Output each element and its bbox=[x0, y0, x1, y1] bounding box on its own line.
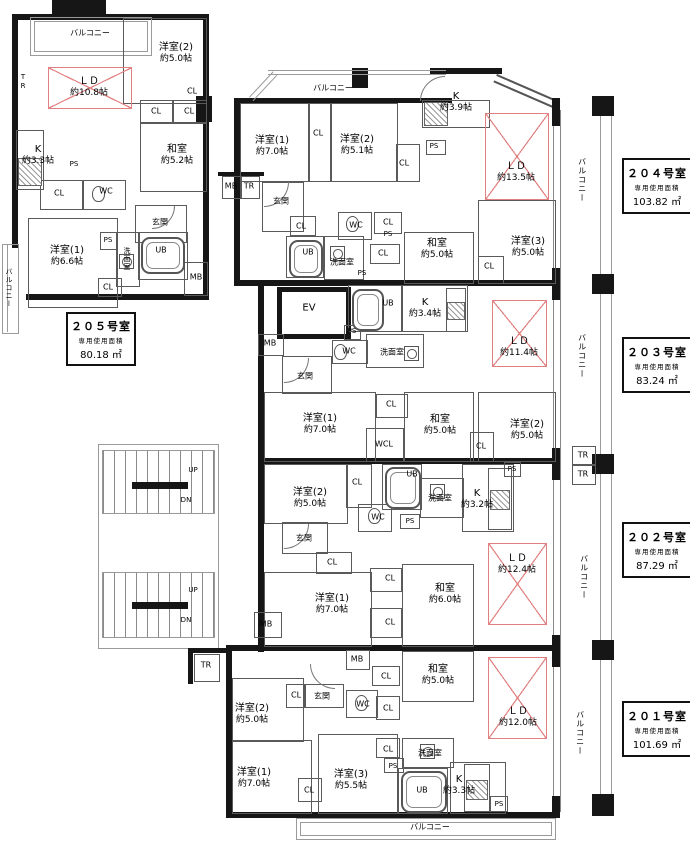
closet-label: CL bbox=[327, 557, 337, 566]
trunk-room-label: TR bbox=[19, 73, 27, 91]
room-name: 洋室(1) bbox=[255, 135, 289, 147]
room-size: 約11.4帖 bbox=[500, 348, 538, 358]
pipe-space-label: PS bbox=[508, 465, 517, 473]
pipe-space-label: PS bbox=[406, 517, 415, 525]
pipe-space-label: PS bbox=[495, 800, 504, 808]
room-name: 和室 bbox=[424, 414, 456, 426]
bathtub-icon bbox=[141, 237, 185, 274]
room-label: K 約3.2帖 bbox=[461, 488, 493, 510]
area-value: 101.69 ㎡ bbox=[633, 736, 681, 751]
entrance-label: 玄関 bbox=[152, 217, 168, 226]
room-label: ＬＤ 約10.8帖 bbox=[70, 76, 108, 98]
area-caption: 専用使用面積 bbox=[635, 361, 680, 371]
wc-label: WC bbox=[356, 699, 370, 708]
room-label: K 約3.9帖 bbox=[440, 91, 472, 113]
room-label: 洋室(2) 約5.0帖 bbox=[235, 703, 269, 725]
wall bbox=[552, 796, 560, 818]
room-size: 約5.0帖 bbox=[159, 54, 193, 64]
room-label: ＬＤ 約13.5帖 bbox=[497, 161, 535, 183]
closet-label: CL bbox=[352, 477, 362, 486]
balcony-label: バルコニー bbox=[579, 555, 588, 600]
pipe-space-label: PS bbox=[70, 160, 79, 168]
unit-bath-label: UB bbox=[406, 469, 417, 478]
balcony-label: バルコニー bbox=[313, 83, 353, 92]
room-label: 和室 約5.0帖 bbox=[424, 414, 456, 436]
room-size: 約5.5帖 bbox=[334, 781, 368, 791]
unit-number: ２０１号室 bbox=[627, 708, 687, 724]
unit-number: ２０３号室 bbox=[627, 344, 687, 360]
stairs-down-label: DN bbox=[181, 616, 192, 624]
walkin-closet-label: WCL bbox=[375, 439, 393, 448]
pipe-space-label: PS bbox=[348, 327, 357, 335]
room-size: 約7.0帖 bbox=[237, 779, 271, 789]
closet-label: CL bbox=[296, 221, 306, 230]
room-size: 約10.8帖 bbox=[70, 88, 108, 98]
room-label: 洋室(3) 約5.0帖 bbox=[511, 236, 545, 258]
entrance-label: 玄関 bbox=[297, 371, 313, 380]
trunk-room-label: TR bbox=[578, 469, 588, 478]
room-size: 約5.0帖 bbox=[235, 715, 269, 725]
entrance-label: 玄関 bbox=[273, 196, 289, 205]
unit-info-203: ２０３号室 専用使用面積 83.24 ㎡ bbox=[622, 337, 690, 393]
room-name: 洋室(3) bbox=[334, 769, 368, 781]
room-size: 約3.9帖 bbox=[440, 103, 472, 113]
room-label: 洋室(1) 約7.0帖 bbox=[315, 593, 349, 615]
closet-label: CL bbox=[385, 617, 395, 626]
wall bbox=[352, 68, 368, 88]
room-name: K bbox=[443, 774, 475, 786]
room-size: 約7.0帖 bbox=[255, 147, 289, 157]
room-label: ＬＤ 約11.4帖 bbox=[500, 336, 538, 358]
balcony-rail bbox=[268, 74, 446, 75]
balcony-label: バルコニー bbox=[575, 711, 584, 756]
wc-label: WC bbox=[99, 186, 113, 195]
room-label: 和室 約6.0帖 bbox=[429, 583, 461, 605]
room-label: 洋室(1) 約7.0帖 bbox=[303, 413, 337, 435]
entrance-label: 玄関 bbox=[296, 533, 312, 542]
room-label: 洋室(2) 約5.0帖 bbox=[510, 419, 544, 441]
pipe-space-label: PS bbox=[389, 762, 398, 770]
washroom-label: 洗面室 bbox=[428, 493, 452, 502]
unit-number: ２０４号室 bbox=[627, 165, 687, 181]
closet-label: CL bbox=[313, 128, 323, 137]
room-name: 和室 bbox=[161, 144, 193, 156]
room-name: 和室 bbox=[421, 238, 453, 250]
area-value: 83.24 ㎡ bbox=[636, 372, 678, 387]
washroom-label: 洗面室 bbox=[380, 347, 404, 356]
washroom-label: 洗面室 bbox=[123, 247, 131, 271]
room-size: 約12.4帖 bbox=[498, 565, 536, 575]
room-name: 洋室(3) bbox=[511, 236, 545, 248]
room-size: 約7.0帖 bbox=[315, 605, 349, 615]
area-value: 80.18 ㎡ bbox=[80, 346, 122, 361]
room-size: 約5.0帖 bbox=[510, 431, 544, 441]
wc-label: WC bbox=[349, 220, 363, 229]
room-label: K 約3.4帖 bbox=[409, 297, 441, 319]
closet-label: CL bbox=[304, 785, 314, 794]
room-size: 約6.0帖 bbox=[429, 595, 461, 605]
room-name: 和室 bbox=[422, 664, 454, 676]
area-caption: 専用使用面積 bbox=[635, 725, 680, 735]
unit-bath-label: UB bbox=[302, 247, 313, 256]
balcony-label: バルコニー bbox=[410, 822, 450, 831]
area-caption: 専用使用面積 bbox=[635, 546, 680, 556]
entrance-label: 玄関 bbox=[314, 691, 330, 700]
closet-label: CL bbox=[381, 671, 391, 680]
wc-label: WC bbox=[342, 346, 356, 355]
unit-bath-label: UB bbox=[155, 245, 166, 254]
room-label: K 約3.3帖 bbox=[22, 144, 54, 166]
closet-label: CL bbox=[399, 158, 409, 167]
stove-icon bbox=[447, 302, 465, 320]
pipe-space-label: PS bbox=[104, 236, 113, 244]
trunk-room-label: TR bbox=[578, 450, 588, 459]
elevator-label: EV bbox=[302, 302, 315, 314]
room-name: 洋室(1) bbox=[50, 245, 84, 257]
closet-label: CL bbox=[383, 217, 393, 226]
unit-info-201: ２０１号室 専用使用面積 101.69 ㎡ bbox=[622, 701, 690, 757]
room-size: 約3.2帖 bbox=[461, 500, 493, 510]
room-size: 約5.0帖 bbox=[422, 676, 454, 686]
window bbox=[493, 74, 560, 110]
closet-label: CL bbox=[54, 188, 64, 197]
room-label: 和室 約5.0帖 bbox=[422, 664, 454, 686]
meter-box-label: MB bbox=[225, 181, 237, 190]
closet-label: CL bbox=[187, 86, 197, 95]
room-name: K bbox=[461, 488, 493, 500]
wall bbox=[52, 0, 106, 14]
balcony-label: バルコニー bbox=[70, 28, 110, 37]
unit-info-202: ２０２号室 専用使用面積 87.29 ㎡ bbox=[622, 522, 690, 578]
pillar bbox=[592, 640, 614, 660]
room-size: 約5.0帖 bbox=[421, 250, 453, 260]
balcony-rail bbox=[268, 70, 446, 71]
area-value: 103.82 ㎡ bbox=[633, 193, 681, 208]
trunk-room-label: TR bbox=[244, 181, 254, 190]
area-caption: 専用使用面積 bbox=[635, 182, 680, 192]
wall bbox=[552, 98, 560, 126]
closet-label: CL bbox=[385, 573, 395, 582]
pipe-space-label: PS bbox=[430, 142, 439, 150]
floor-plan: バルコニー TR 洋室(2) 約5.0帖 CL CL CL ＬＤ 約10.8帖 … bbox=[0, 0, 690, 843]
unit-info-204: ２０４号室 専用使用面積 103.82 ㎡ bbox=[622, 158, 690, 214]
room-label: 和室 約5.2帖 bbox=[161, 144, 193, 166]
room-name: 和室 bbox=[429, 583, 461, 595]
unit-info-205: ２０５号室 専用使用面積 80.18 ㎡ bbox=[66, 312, 136, 366]
balcony-label: バルコニー bbox=[577, 158, 586, 203]
room-name: ＬＤ bbox=[498, 553, 536, 565]
meter-box-label: MB bbox=[264, 338, 276, 347]
room-label: 和室 約5.0帖 bbox=[421, 238, 453, 260]
meter-box-label: MB bbox=[351, 654, 363, 663]
room-label: ＬＤ 約12.0帖 bbox=[499, 706, 537, 728]
unit-number: ２０２号室 bbox=[627, 529, 687, 545]
room-label: K 約3.3帖 bbox=[443, 774, 475, 796]
wall bbox=[552, 635, 560, 667]
room-outline bbox=[308, 103, 332, 182]
stairs-up-label: UP bbox=[188, 466, 197, 474]
room-name: ＬＤ bbox=[499, 706, 537, 718]
balcony-label: バルコニー bbox=[577, 334, 586, 379]
sink-icon bbox=[404, 346, 419, 361]
closet-label: CL bbox=[476, 441, 486, 450]
pillar bbox=[592, 96, 614, 116]
pipe-space-label: PS bbox=[358, 269, 367, 277]
room-name: ＬＤ bbox=[497, 161, 535, 173]
room-name: ＬＤ bbox=[500, 336, 538, 348]
washroom-label: 洗面室 bbox=[418, 748, 442, 757]
wall bbox=[188, 648, 193, 684]
room-size: 約5.0帖 bbox=[511, 248, 545, 258]
pillar bbox=[592, 794, 614, 816]
closet-label: CL bbox=[151, 106, 161, 115]
stairs-up-label: UP bbox=[188, 586, 197, 594]
room-size: 約5.2帖 bbox=[161, 156, 193, 166]
pipe-space-label: PS bbox=[384, 230, 393, 238]
wall bbox=[188, 648, 230, 653]
unit-bath-label: UB bbox=[382, 298, 393, 307]
room-name: 洋室(1) bbox=[237, 767, 271, 779]
room-name: ＬＤ bbox=[70, 76, 108, 88]
closet-label: CL bbox=[484, 261, 494, 270]
room-label: ＬＤ 約12.4帖 bbox=[498, 553, 536, 575]
closet-label: CL bbox=[386, 399, 396, 408]
room-name: 洋室(2) bbox=[293, 487, 327, 499]
room-size: 約5.0帖 bbox=[424, 426, 456, 436]
room-name: K bbox=[409, 297, 441, 309]
room-label: 洋室(1) 約7.0帖 bbox=[237, 767, 271, 789]
pillar bbox=[592, 274, 614, 294]
room-size: 約3.3帖 bbox=[443, 786, 475, 796]
closet-label: CL bbox=[378, 248, 388, 257]
meter-box-label: MB bbox=[190, 272, 202, 281]
room-name: 洋室(2) bbox=[159, 42, 193, 54]
room-name: 洋室(2) bbox=[235, 703, 269, 715]
wc-label: WC bbox=[371, 512, 385, 521]
area-caption: 専用使用面積 bbox=[79, 335, 124, 345]
closet-label: CL bbox=[103, 282, 113, 291]
stair-landing bbox=[132, 602, 188, 609]
room-label: 洋室(1) 約6.6帖 bbox=[50, 245, 84, 267]
room-size: 約3.4帖 bbox=[409, 309, 441, 319]
washroom-label: 洗面室 bbox=[330, 257, 354, 266]
room-label: 洋室(2) 約5.0帖 bbox=[293, 487, 327, 509]
closet-label: CL bbox=[291, 690, 301, 699]
room-name: K bbox=[440, 91, 472, 103]
room-label: 洋室(2) 約5.1帖 bbox=[340, 134, 374, 156]
bathtub-icon bbox=[352, 289, 384, 331]
unit-number: ２０５号室 bbox=[71, 318, 131, 334]
room-name: 洋室(1) bbox=[303, 413, 337, 425]
stair-landing bbox=[132, 482, 188, 489]
balcony-rail bbox=[249, 71, 277, 101]
bathtub-icon bbox=[289, 240, 323, 278]
closet-label: CL bbox=[184, 106, 194, 115]
meter-box-label: MB bbox=[260, 619, 272, 628]
stairs-down-label: DN bbox=[181, 496, 192, 504]
room-name: 洋室(2) bbox=[510, 419, 544, 431]
room-name: 洋室(2) bbox=[340, 134, 374, 146]
room-name: 洋室(1) bbox=[315, 593, 349, 605]
area-value: 87.29 ㎡ bbox=[636, 557, 678, 572]
unit-bath-label: UB bbox=[416, 785, 427, 794]
room-label: 洋室(1) 約7.0帖 bbox=[255, 135, 289, 157]
closet-label: CL bbox=[383, 703, 393, 712]
room-outline bbox=[402, 564, 474, 647]
room-label: 洋室(2) 約5.0帖 bbox=[159, 42, 193, 64]
room-size: 約7.0帖 bbox=[303, 425, 337, 435]
room-size: 約12.0帖 bbox=[499, 718, 537, 728]
room-name: K bbox=[22, 144, 54, 156]
closet-label: CL bbox=[383, 744, 393, 753]
room-size: 約5.1帖 bbox=[340, 146, 374, 156]
room-size: 約5.0帖 bbox=[293, 499, 327, 509]
room-size: 約13.5帖 bbox=[497, 173, 535, 183]
room-size: 約3.3帖 bbox=[22, 156, 54, 166]
room-size: 約6.6帖 bbox=[50, 257, 84, 267]
ld-area-204 bbox=[485, 113, 549, 200]
room-label: 洋室(3) 約5.5帖 bbox=[334, 769, 368, 791]
balcony-label: バルコニー bbox=[5, 268, 13, 308]
trunk-room-label: TR bbox=[201, 660, 211, 669]
